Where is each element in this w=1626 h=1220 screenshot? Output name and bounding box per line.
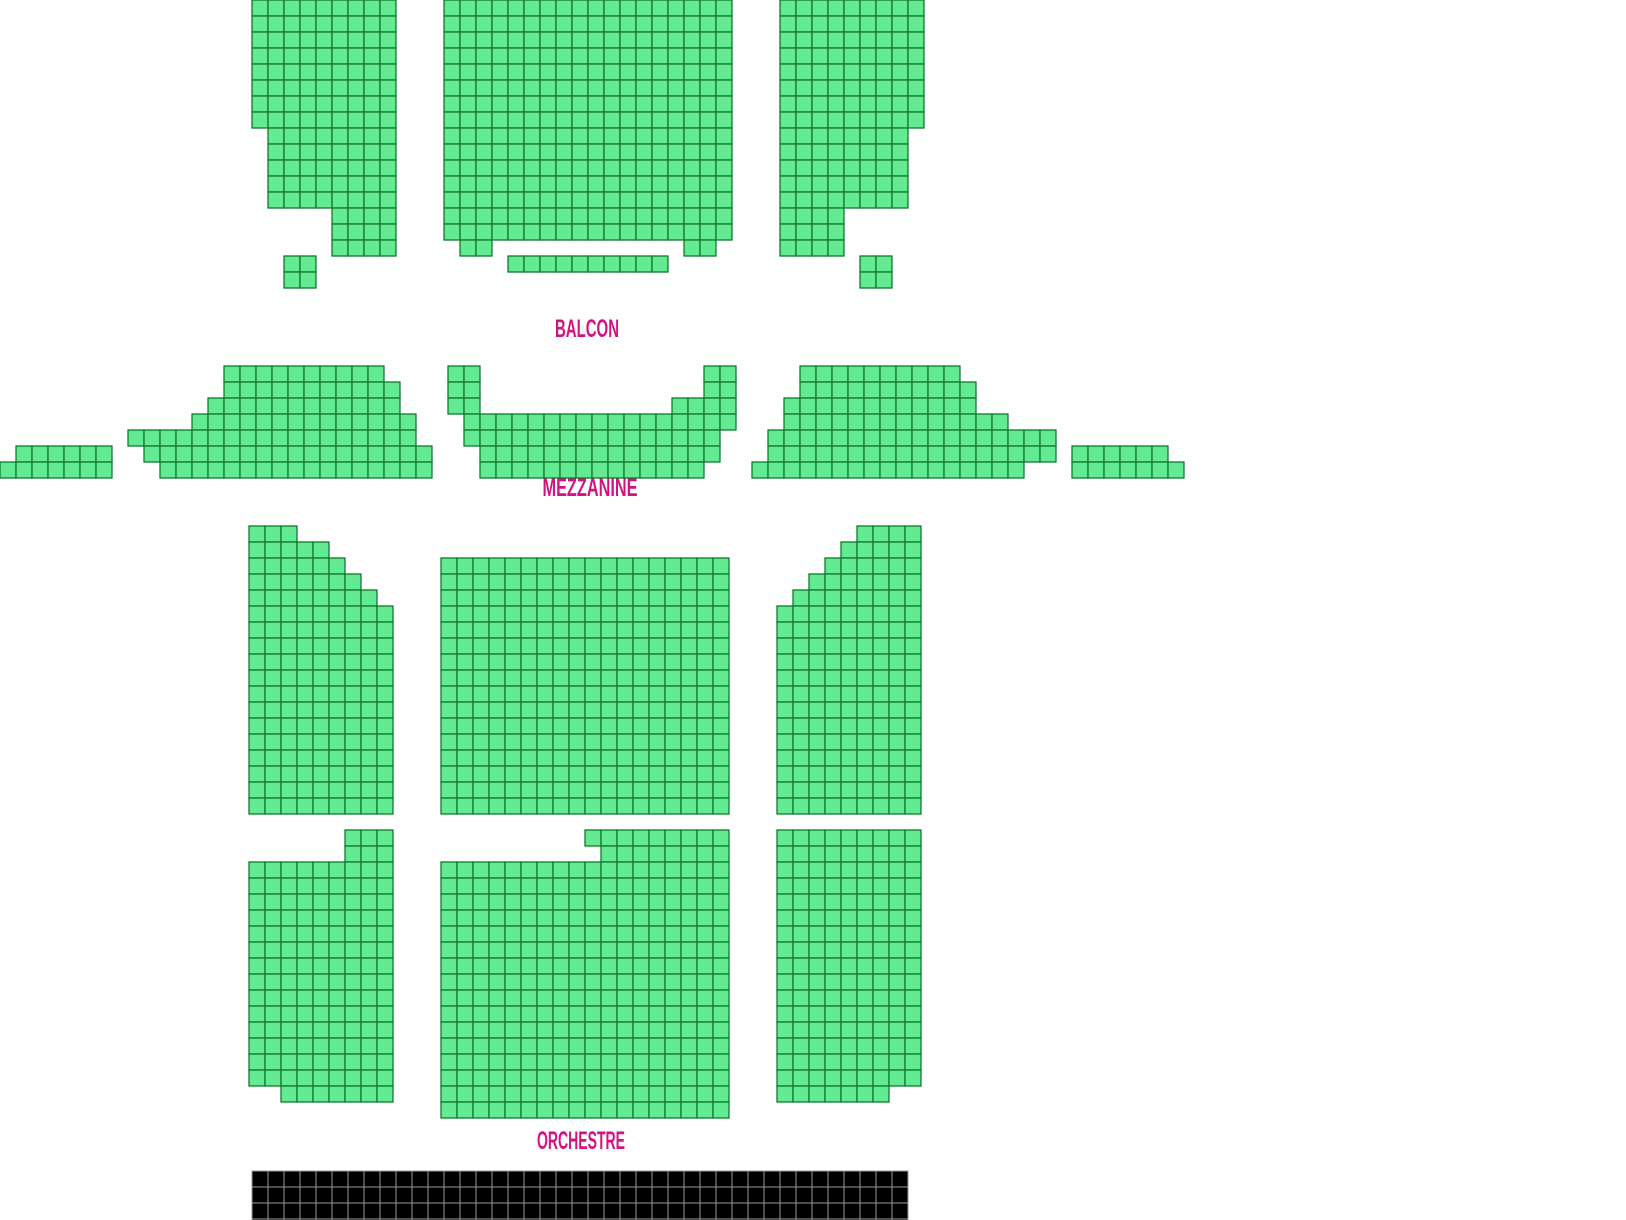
svg-text:MEZZANINE: MEZZANINE	[543, 474, 638, 502]
svg-text:ORCHESTRE: ORCHESTRE	[537, 1127, 625, 1155]
svg-text:BALCON: BALCON	[555, 315, 619, 343]
